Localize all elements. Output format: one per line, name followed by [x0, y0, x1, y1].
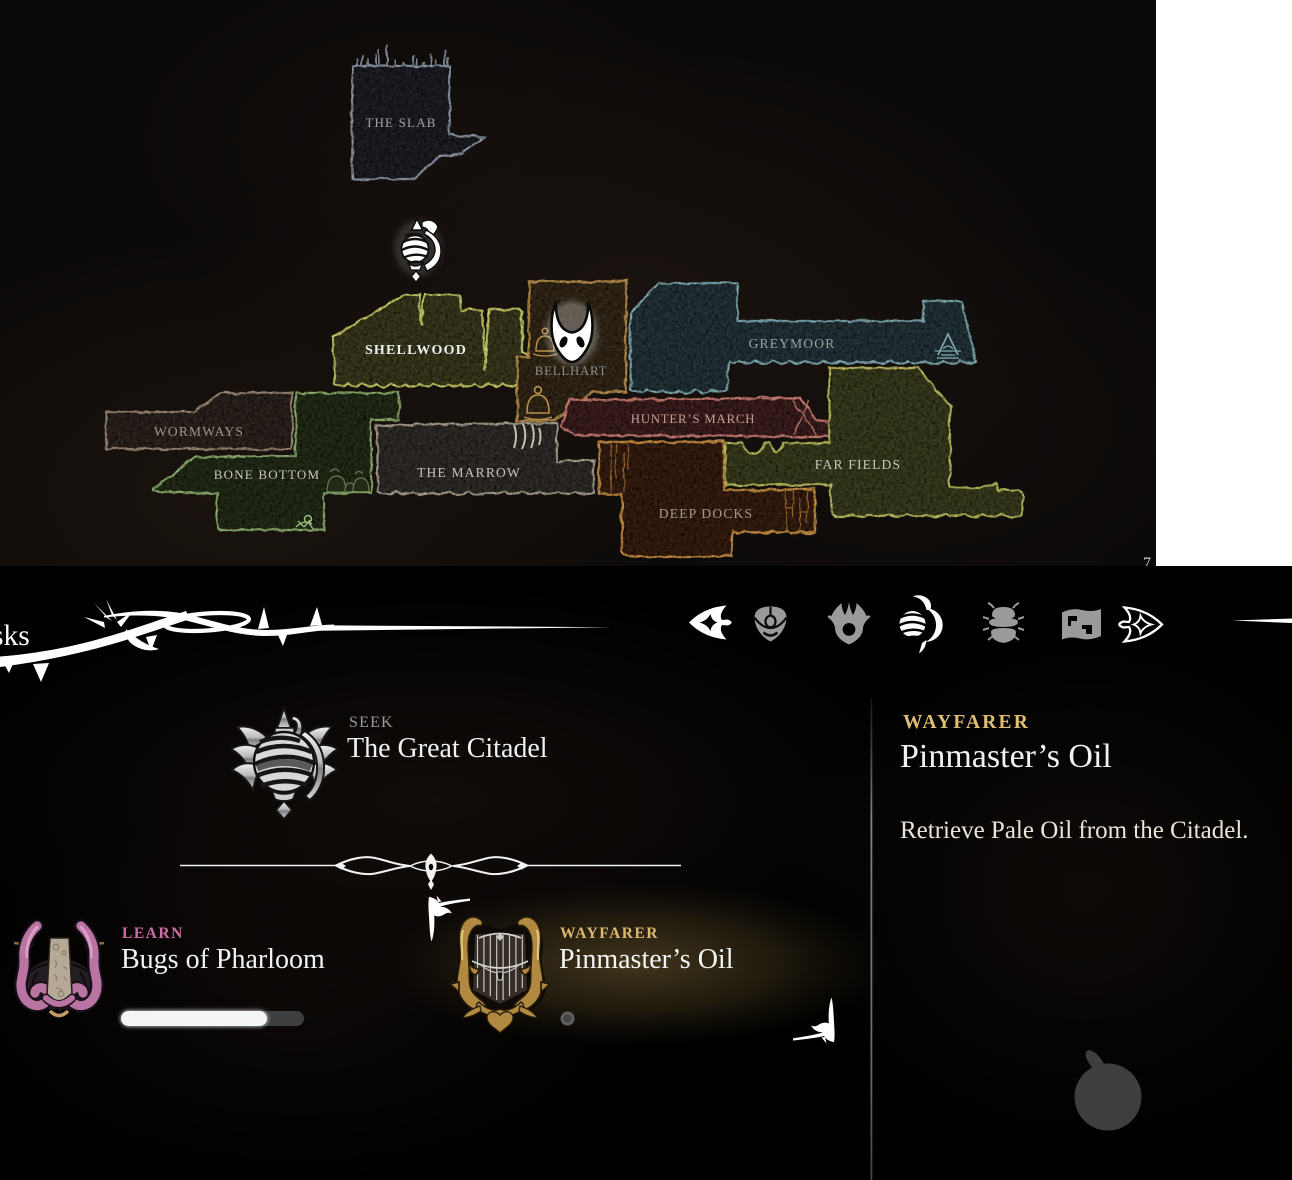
svg-text:DEEP DOCKS: DEEP DOCKS	[659, 506, 753, 521]
svg-text:The Great Citadel: The Great Citadel	[347, 733, 548, 764]
svg-text:Bugs of Pharloom: Bugs of Pharloom	[121, 944, 325, 975]
svg-text:Pinmaster’s Oil: Pinmaster’s Oil	[559, 944, 734, 975]
svg-text:THE MARROW: THE MARROW	[417, 465, 521, 480]
svg-text:FAR FIELDS: FAR FIELDS	[815, 457, 901, 472]
svg-text:WORMWAYS: WORMWAYS	[154, 424, 244, 439]
svg-text:SHELLWOOD: SHELLWOOD	[365, 343, 467, 358]
svg-text:THE SLAB: THE SLAB	[365, 115, 436, 130]
svg-text:SEEK: SEEK	[349, 714, 394, 731]
svg-text:BONE BOTTOM: BONE BOTTOM	[214, 467, 321, 482]
svg-text:WAYFARER: WAYFARER	[903, 712, 1030, 733]
svg-text:BELLHART: BELLHART	[535, 364, 607, 378]
svg-text:GREYMOOR: GREYMOOR	[749, 336, 836, 351]
svg-text:LEARN: LEARN	[122, 925, 184, 942]
svg-text:Retrieve Pale Oil from the Cit: Retrieve Pale Oil from the Citadel.	[900, 817, 1249, 844]
svg-text:WAYFARER: WAYFARER	[560, 925, 659, 942]
svg-text:HUNTER’S MARCH: HUNTER’S MARCH	[631, 412, 756, 426]
svg-text:Pinmaster’s Oil: Pinmaster’s Oil	[900, 738, 1112, 775]
svg-text:sks: sks	[0, 620, 30, 652]
